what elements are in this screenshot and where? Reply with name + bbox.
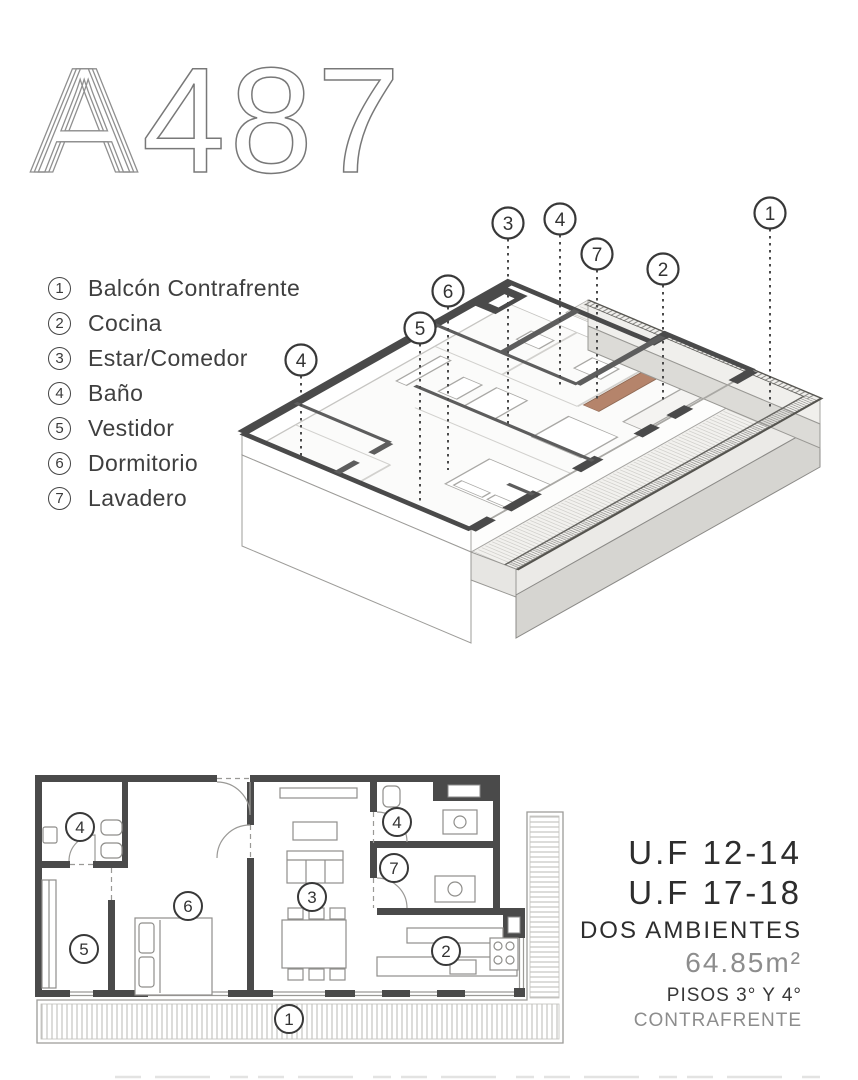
legend-row-bano: 4 Baño (48, 376, 300, 411)
chair-1 (288, 908, 303, 919)
wall-bath1-south-b (93, 861, 128, 868)
legend-num-4: 4 (48, 382, 71, 405)
bath2-toilet (383, 786, 400, 807)
shaft-box-inner (448, 785, 480, 797)
svg-text:1: 1 (284, 1010, 293, 1029)
plan-callout-6: 6 (174, 892, 202, 920)
wall-west (35, 775, 42, 997)
svg-text:6: 6 (183, 897, 192, 916)
legend-num-6: 6 (48, 452, 71, 475)
wall-south-corner (514, 988, 525, 997)
bed-pillow-2 (139, 957, 154, 987)
legend-row-vestidor: 5 Vestidor (48, 411, 300, 446)
plan-callout-4-right: 4 (383, 808, 411, 836)
burner-3 (494, 956, 502, 964)
legend-row-lavadero: 7 Lavadero (48, 481, 300, 516)
bath1-toilet (101, 820, 122, 835)
sofa (287, 851, 343, 883)
wall-north-right (250, 775, 500, 782)
coffee-table (293, 822, 337, 840)
wall-south-4 (325, 990, 355, 997)
legend-row-dormitorio: 6 Dormitorio (48, 446, 300, 481)
washing-machine-door (448, 882, 462, 896)
iso-callout-1: 1 (755, 198, 786, 229)
wall-block-west-a (370, 782, 377, 812)
iso-view: 6 3 4 7 2 (242, 198, 822, 644)
legend-label-cocina: Cocina (88, 310, 162, 337)
burner-1 (494, 942, 502, 950)
legend-row-cocina: 2 Cocina (48, 306, 300, 341)
wall-living-west-b (247, 858, 254, 997)
bath1-bidet (101, 843, 122, 858)
legend-label-bano: Baño (88, 380, 143, 407)
wall-closet (108, 900, 115, 997)
svg-text:6: 6 (443, 282, 454, 303)
plan-callout-1: 1 (275, 1005, 303, 1033)
legend-num-2: 2 (48, 312, 71, 335)
svg-text:3: 3 (307, 888, 316, 907)
unit-line-1: U.F 12-14 (580, 833, 802, 873)
bed-pillow-1 (139, 923, 154, 953)
plan-callout-2: 2 (432, 937, 460, 965)
legend-num-1: 1 (48, 277, 71, 300)
wall-south-3 (228, 990, 273, 997)
wall-kitchen-north (377, 908, 525, 915)
logo-digits: 487 (142, 36, 404, 204)
svg-text:1: 1 (765, 204, 776, 225)
apartment-area: 64.85m² (580, 947, 802, 979)
dining-table (282, 920, 346, 968)
svg-text:4: 4 (75, 818, 84, 837)
iso-callout-3: 3 (493, 208, 524, 239)
wall-south-5 (382, 990, 410, 997)
door-arc-bedroom (217, 825, 250, 858)
tv-console (280, 788, 357, 798)
chair-6 (330, 969, 345, 980)
legend-label-estar: Estar/Comedor (88, 345, 248, 372)
svg-text:5: 5 (415, 319, 426, 340)
legend-row-estar: 3 Estar/Comedor (48, 341, 300, 376)
legend-label-lavadero: Lavadero (88, 485, 187, 512)
floor-plan-2d: 4 6 5 3 4 (35, 775, 563, 1043)
legend-label-dormitorio: Dormitorio (88, 450, 198, 477)
plan-callout-4-left: 4 (66, 813, 94, 841)
svg-text:4: 4 (392, 813, 401, 832)
iso-callout-5: 5 (405, 313, 436, 344)
wall-block-west-b (370, 843, 377, 878)
legend-label-vestidor: Vestidor (88, 415, 174, 442)
wall-south-1 (35, 990, 70, 997)
svg-text:2: 2 (658, 260, 669, 281)
plan-callout-3: 3 (298, 883, 326, 911)
chair-5 (309, 969, 324, 980)
wall-south-6 (437, 990, 465, 997)
svg-text:4: 4 (555, 210, 566, 231)
apartment-floors: PISOS 3° Y 4° (580, 983, 802, 1008)
plan-callout-5: 5 (70, 935, 98, 963)
bath1-sink (43, 827, 57, 843)
burner-2 (506, 942, 514, 950)
wall-bath2-lavadero-divider (370, 841, 500, 848)
burner-4 (506, 956, 514, 964)
apartment-orientation: CONTRAFRENTE (580, 1008, 802, 1033)
wall-bath1-south-a (35, 861, 70, 868)
plan-sheet: A A A 487 (0, 0, 858, 1080)
iso-callout-4-top: 4 (545, 204, 576, 235)
door-arc-entry (217, 782, 250, 815)
iso-callout-6: 6 (433, 276, 464, 307)
iso-callout-7: 7 (582, 239, 613, 270)
logo-a487: A A A 487 (30, 36, 404, 204)
chair-3 (330, 908, 345, 919)
legend: 1 Balcón Contrafrente 2 Cocina 3 Estar/C… (48, 271, 300, 516)
legend-num-7: 7 (48, 487, 71, 510)
svg-text:2: 2 (441, 942, 450, 961)
kitchen-stove (490, 938, 518, 970)
unit-line-2: U.F 17-18 (580, 873, 802, 913)
svg-text:5: 5 (79, 940, 88, 959)
svg-text:7: 7 (592, 245, 603, 266)
legend-row-balcon: 1 Balcón Contrafrente (48, 271, 300, 306)
apartment-type: DOS AMBIENTES (580, 915, 802, 947)
bath2-sink-bowl (454, 816, 466, 828)
legend-label-balcon: Balcón Contrafrente (88, 275, 300, 302)
svg-text:7: 7 (389, 859, 398, 878)
logo-letter-stroke3: A (38, 36, 138, 204)
svg-text:3: 3 (503, 214, 514, 235)
legend-num-5: 5 (48, 417, 71, 440)
wall-bath1-east (122, 775, 128, 868)
kitchen-column-window (508, 917, 520, 933)
unit-info: U.F 12-14 U.F 17-18 DOS AMBIENTES 64.85m… (580, 833, 802, 1033)
plan-callout-7: 7 (380, 854, 408, 882)
iso-callout-2: 2 (648, 254, 679, 285)
chair-4 (288, 969, 303, 980)
legend-num-3: 3 (48, 347, 71, 370)
